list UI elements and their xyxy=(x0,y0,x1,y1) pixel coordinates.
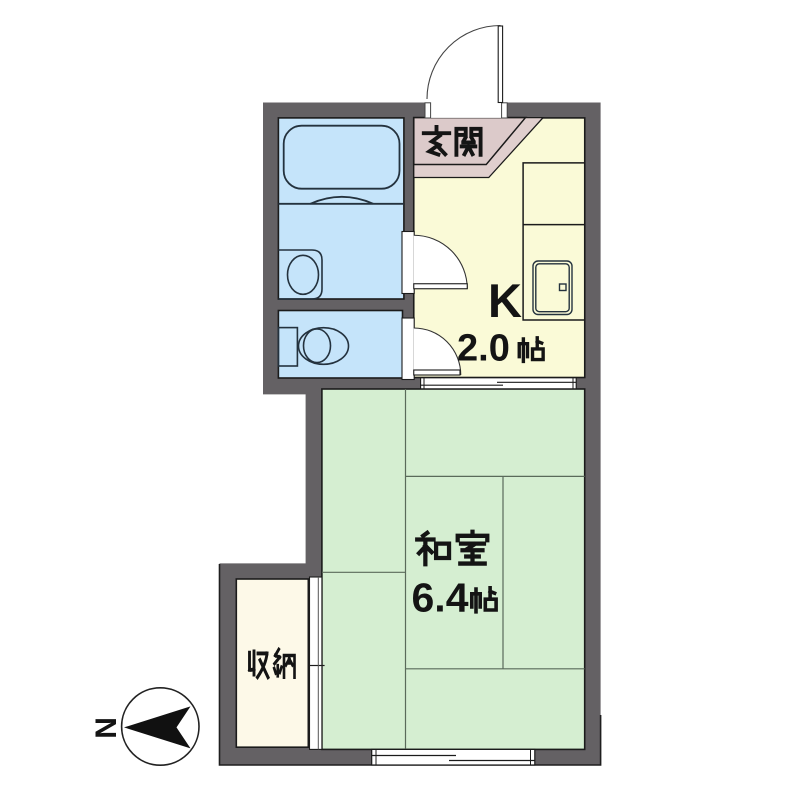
svg-text:N: N xyxy=(89,717,122,739)
svg-text:K: K xyxy=(488,274,522,327)
svg-text:6.4: 6.4 xyxy=(412,575,469,621)
svg-text:2.0: 2.0 xyxy=(457,328,510,370)
